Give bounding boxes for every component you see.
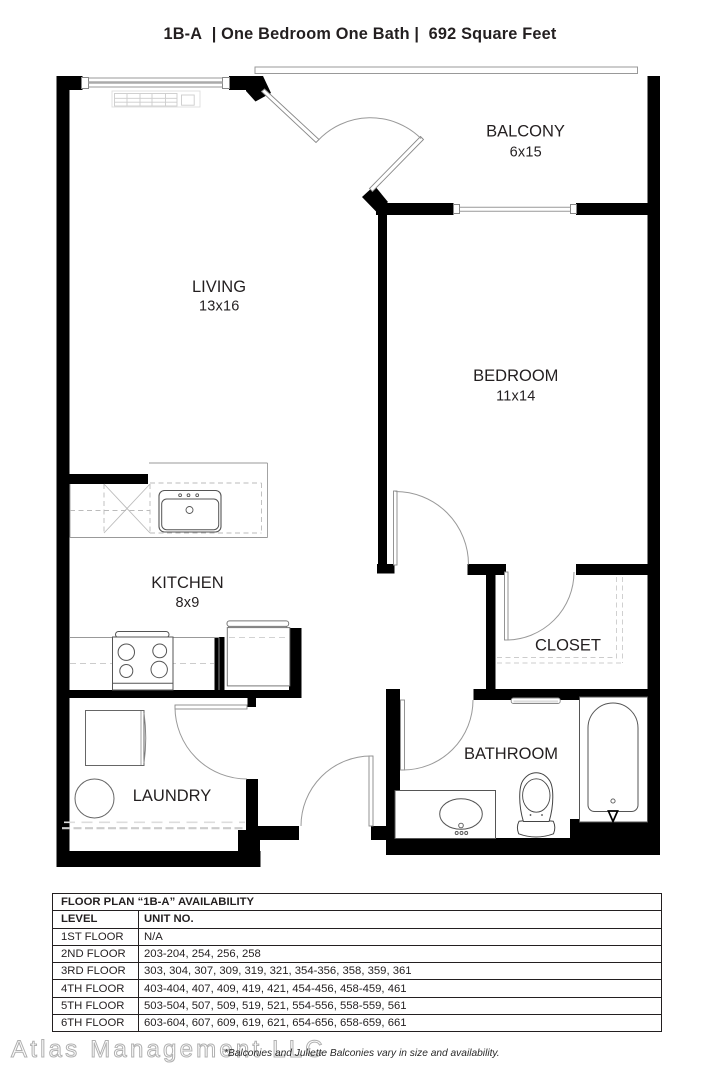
svg-text:LAUNDRY: LAUNDRY — [133, 787, 212, 805]
svg-text:8x9: 8x9 — [176, 595, 200, 611]
svg-text:BALCONY: BALCONY — [486, 123, 565, 141]
svg-text:KITCHEN: KITCHEN — [151, 574, 223, 592]
svg-text:BEDROOM: BEDROOM — [473, 367, 558, 385]
svg-text:6x15: 6x15 — [510, 145, 542, 161]
svg-text:LIVING: LIVING — [192, 278, 246, 296]
svg-text:BATHROOM: BATHROOM — [464, 745, 558, 763]
svg-text:11x14: 11x14 — [496, 388, 535, 404]
svg-text:13x16: 13x16 — [199, 299, 240, 315]
svg-text:CLOSET: CLOSET — [535, 637, 601, 655]
